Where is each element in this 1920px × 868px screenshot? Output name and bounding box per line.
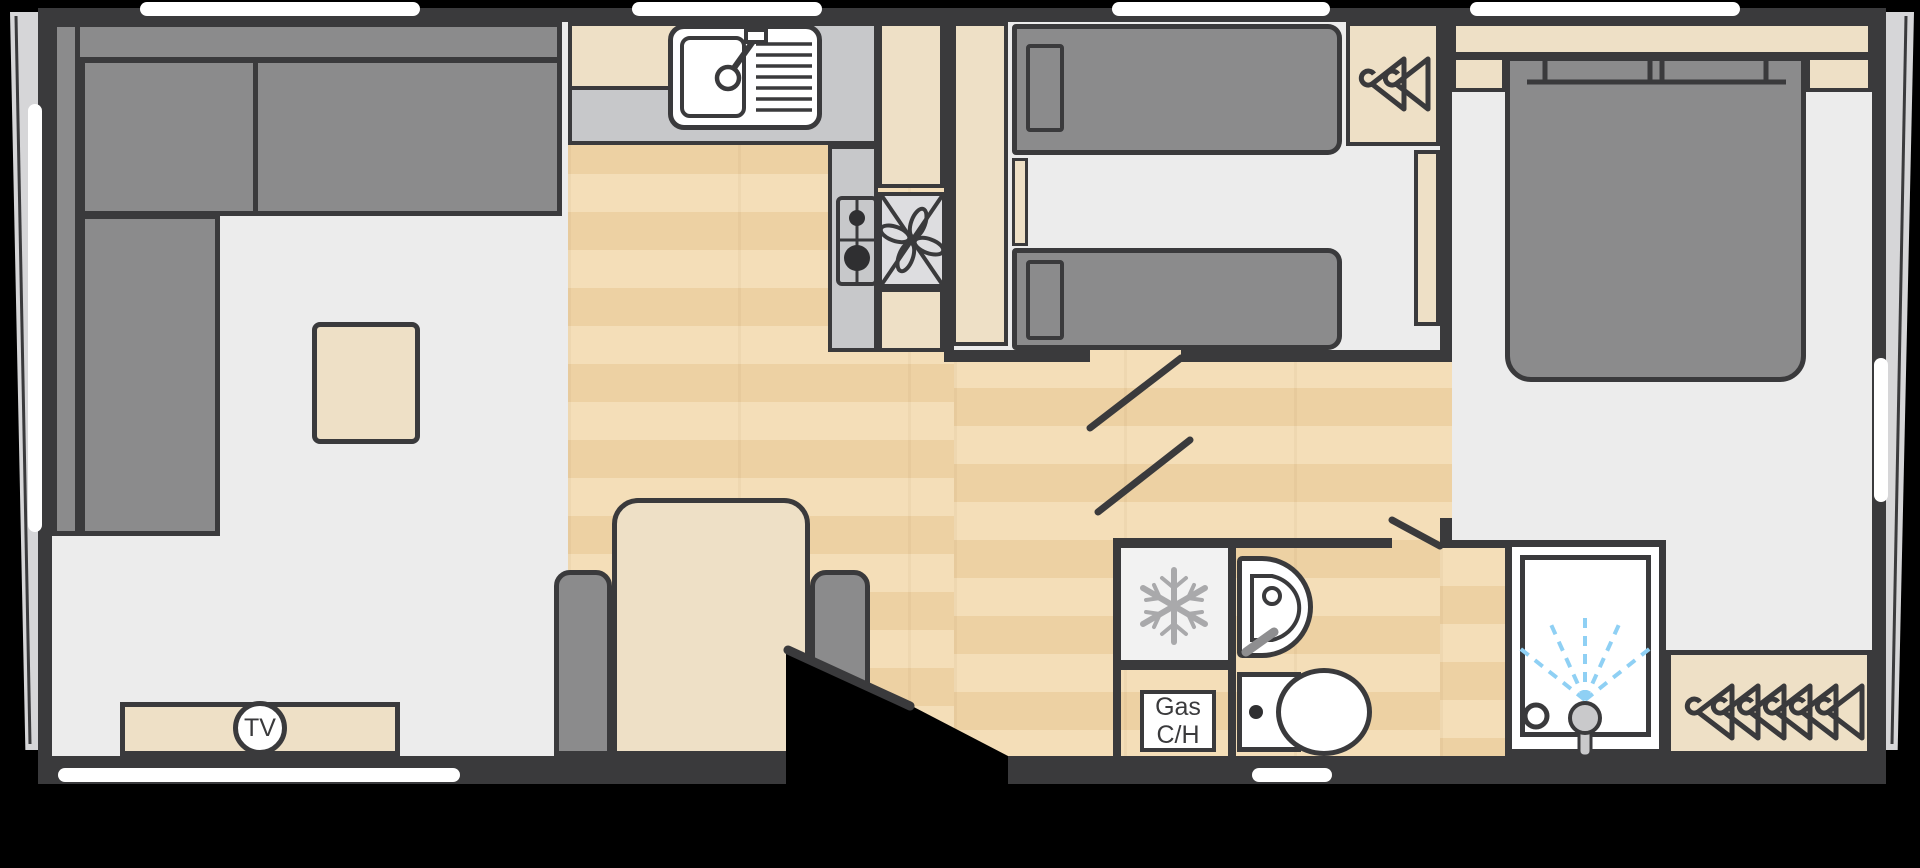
wall-bathroom-top bbox=[1113, 538, 1392, 548]
gas-label-line2: C/H bbox=[1156, 721, 1199, 749]
fridge bbox=[1121, 548, 1228, 662]
window-bottom-lounge bbox=[58, 768, 460, 782]
sofa-cushion-left bbox=[80, 58, 258, 216]
twin-bed-1-headboard bbox=[1026, 44, 1064, 132]
kitchen-tall-cabinet-lower bbox=[878, 288, 944, 352]
twin-wardrobe-corner bbox=[1346, 22, 1440, 146]
wall-kitchen-twin bbox=[944, 22, 954, 352]
window-left-end bbox=[28, 104, 42, 532]
gas-central-heating-box: Gas C/H bbox=[1140, 690, 1216, 752]
tv-badge: TV bbox=[233, 701, 287, 755]
window-top-twin bbox=[1112, 2, 1330, 16]
wall-shower-master bbox=[1444, 540, 1510, 548]
master-wardrobe bbox=[1666, 650, 1872, 756]
sofa-seat-left bbox=[80, 214, 220, 536]
dinette-chair-right bbox=[810, 570, 870, 756]
extractor-fan-box bbox=[878, 192, 946, 288]
wall-fridge-bottom bbox=[1113, 660, 1236, 670]
dinette-table bbox=[612, 498, 810, 756]
window-top-kitchen bbox=[632, 2, 822, 16]
master-double-bed bbox=[1505, 56, 1806, 382]
window-bottom-corridor bbox=[1252, 768, 1332, 782]
bathroom-floor-by-shower bbox=[1440, 548, 1510, 756]
dinette-chair-left bbox=[554, 570, 612, 756]
shower-enclosure bbox=[1505, 540, 1666, 756]
master-nightstand-right bbox=[1806, 56, 1872, 92]
wall-twin-bottom-right bbox=[1181, 350, 1452, 362]
master-overhead-shelf bbox=[1452, 22, 1872, 56]
twin-cupboard-right bbox=[1414, 150, 1440, 326]
kitchen-cabinet-top-left bbox=[568, 22, 682, 90]
window-right-end bbox=[1874, 358, 1888, 502]
sofa-back-left bbox=[52, 22, 80, 536]
twin-wardrobe-left bbox=[952, 22, 1008, 346]
window-top-master bbox=[1470, 2, 1740, 16]
twin-bed-2-headboard bbox=[1026, 260, 1064, 340]
window-top-lounge bbox=[140, 2, 420, 16]
wall-bathroom-left bbox=[1113, 548, 1121, 756]
kitchen-tall-cabinet-upper bbox=[878, 22, 944, 188]
lounge-table bbox=[312, 322, 420, 444]
wall-outer-bottom-right bbox=[1008, 756, 1886, 784]
toilet-bowl bbox=[1276, 668, 1372, 756]
hob bbox=[836, 196, 878, 286]
sofa-cushion-right bbox=[253, 58, 562, 216]
master-nightstand-left bbox=[1452, 56, 1506, 92]
tv-label: TV bbox=[244, 714, 276, 743]
wall-twin-bottom-left bbox=[944, 350, 1090, 362]
sofa-back-top bbox=[52, 22, 562, 62]
shower-tray bbox=[1520, 555, 1651, 737]
wall-bathroom-mid bbox=[1228, 548, 1236, 756]
twin-bedside-shelf bbox=[1012, 158, 1028, 246]
wall-master-left bbox=[1440, 22, 1452, 362]
gas-label-line1: Gas bbox=[1155, 693, 1201, 721]
sink-bowl bbox=[680, 36, 746, 118]
caravan-floorplan: TV Gas C/H bbox=[0, 0, 1920, 868]
